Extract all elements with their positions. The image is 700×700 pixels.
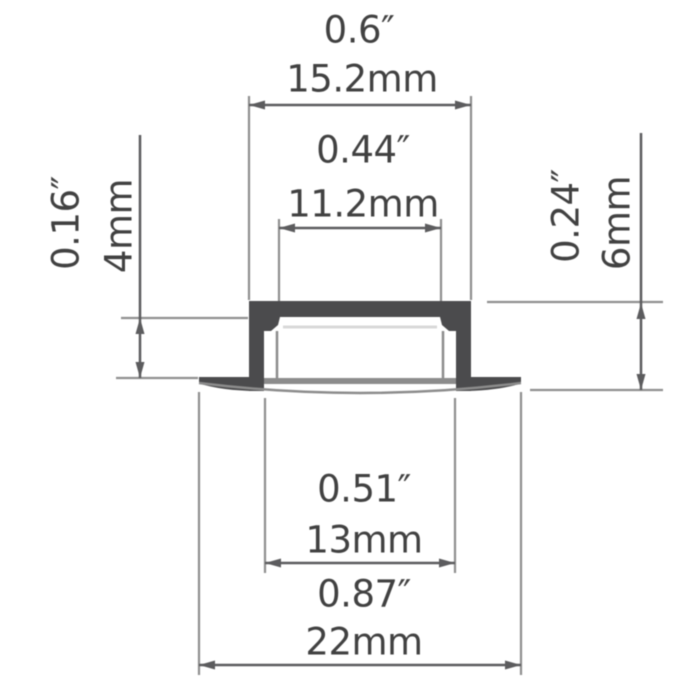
total-height-inches-label: 0.24″ [548,169,585,263]
arrow-right-icon [455,101,471,110]
total-height-mm-label: 6mm [599,176,636,270]
inner-width-inches-label: 0.44″ [316,132,410,169]
arrow-down-icon [637,374,646,390]
overall-width-mm-label: 22mm [305,624,422,661]
profile-right-clip [440,317,456,331]
dimension-diagram: 0.6″ 15.2mm 0.44″ 11.2mm 0.16″ 4mm 0.24″… [0,0,700,700]
arrow-up-icon [637,303,646,319]
arrow-right-icon [505,661,521,670]
arrow-up-icon [136,318,145,334]
body-width-inches-label: 0.51″ [317,471,411,508]
recess-depth-inches-label: 0.16″ [48,176,85,270]
arrow-down-icon [136,362,145,378]
top-width-inches-label: 0.6″ [324,12,395,49]
arrow-left-icon [265,559,281,568]
profile-top-bar [249,301,471,317]
inner-width-mm-label: 11.2mm [287,186,438,223]
top-width-mm-label: 15.2mm [286,61,437,98]
arrow-left-icon [249,101,265,110]
profile-left-clip [264,317,280,331]
arrow-right-icon [439,559,455,568]
recess-depth-mm-label: 4mm [101,179,138,273]
profile-cross-section [199,301,521,393]
overall-width-inches-label: 0.87″ [317,576,411,613]
body-width-mm-label: 13mm [305,522,422,559]
arrow-left-icon [199,661,215,670]
